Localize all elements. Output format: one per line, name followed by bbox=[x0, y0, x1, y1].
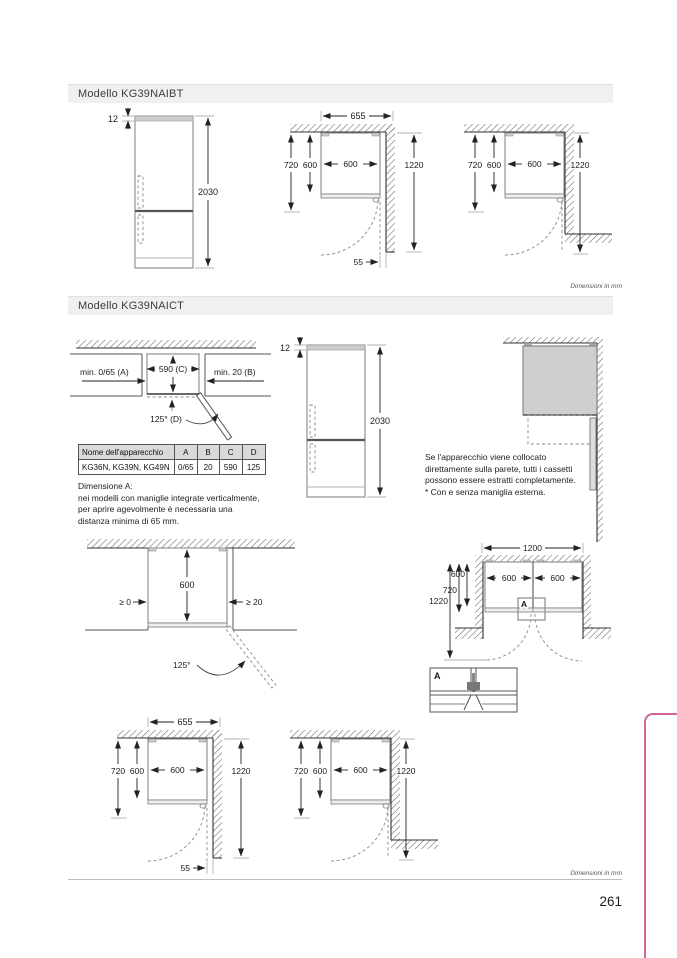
s2-front-view-diagram: 12 2030 bbox=[272, 335, 412, 507]
page-number: 261 bbox=[540, 894, 622, 909]
dim-label-min-20B: min. 20 (B) bbox=[214, 367, 256, 377]
dim-clearance: 1220 bbox=[397, 133, 424, 252]
dim-left-gap: ≥ 0 bbox=[119, 597, 146, 607]
dim-height: 2030 bbox=[195, 116, 218, 268]
cell-b: 20 bbox=[197, 460, 219, 475]
s2-corner-top-view-diagram: 655 720 600 600 1220 55 bbox=[103, 712, 268, 878]
fridge-outline bbox=[307, 345, 365, 497]
dim-label-720: 720 bbox=[284, 160, 298, 170]
units-note-2: Dimensioni in mm bbox=[442, 870, 622, 877]
s2-detail-a-diagram: A bbox=[428, 666, 520, 714]
col-b: B bbox=[197, 445, 219, 460]
detail-callout-label: A bbox=[521, 599, 527, 609]
dim-label-590C: 590 (C) bbox=[159, 364, 188, 374]
dim-label-ge20: ≥ 20 bbox=[246, 597, 263, 607]
dim-label-600-depth: 600 bbox=[313, 766, 327, 776]
dim-wall-depth: 720 bbox=[468, 135, 484, 212]
dim-label-600-depth: 600 bbox=[303, 160, 317, 170]
s1-recess-top-view-diagram: 720 600 600 1220 bbox=[452, 106, 617, 272]
dim-label-gap: 12 bbox=[108, 114, 118, 124]
dim-left-gap: min. 0/65 (A) bbox=[80, 367, 145, 381]
manual-page: { "page": { "number": "261", "accent_pin… bbox=[0, 0, 677, 958]
dim-label-600-right: 600 bbox=[550, 573, 564, 583]
table-row: KG36N, KG39N, KG49N 0/65 20 590 125 bbox=[79, 460, 266, 475]
door-swing bbox=[331, 804, 388, 861]
dim-label-600-depth: 600 bbox=[487, 160, 501, 170]
cell-c: 590 bbox=[219, 460, 242, 475]
door-swing bbox=[321, 198, 380, 256]
fridge-pair-top-view bbox=[485, 560, 582, 612]
s2-niche-diagram: 590 (C) min. 0/65 (A) min. 20 (B) 125° (… bbox=[68, 332, 273, 442]
note-line-4: distanza minima di 65 mm. bbox=[78, 516, 278, 528]
s2-side-by-side-diagram: 1200 600 720 1220 bbox=[420, 540, 620, 668]
dim-label-55: 55 bbox=[181, 863, 191, 873]
dim-wall-depth: 720 bbox=[294, 741, 310, 818]
dim-body-depth: 600 bbox=[303, 135, 317, 192]
dim-label-125: 125° bbox=[173, 660, 191, 670]
dim-label-600-left: 600 bbox=[502, 573, 516, 583]
dim-label-655: 655 bbox=[350, 111, 365, 121]
dim-right-gap: min. 20 (B) bbox=[207, 367, 264, 381]
s1-front-view-diagram: 12 2030 bbox=[100, 106, 240, 278]
table-header-row: Nome dell'apparecchio A B C D bbox=[79, 445, 266, 460]
dim-label-1220: 1220 bbox=[405, 160, 424, 170]
dim-label-height: 2030 bbox=[198, 187, 218, 197]
dim-label-720: 720 bbox=[111, 766, 125, 776]
wallnote-line-1: Se l'apparecchio viene collocato bbox=[425, 452, 605, 464]
dim-total-width: 655 bbox=[148, 717, 220, 727]
footer-rule bbox=[68, 879, 622, 880]
dim-body-depth: 600 bbox=[487, 135, 501, 192]
section1-header: Modello KG39NAIBT bbox=[68, 84, 613, 103]
dim-label-55: 55 bbox=[354, 257, 364, 267]
dim-wall-depth: 720 bbox=[284, 135, 300, 212]
dim-label-655: 655 bbox=[177, 717, 192, 727]
s2-recess-top-view-diagram: 720 600 600 1220 bbox=[278, 712, 443, 878]
dim-label-720: 720 bbox=[294, 766, 308, 776]
dim-clearance: 1220 bbox=[224, 739, 251, 858]
section1-title: Modello KG39NAIBT bbox=[78, 88, 184, 100]
cell-models: KG36N, KG39N, KG49N bbox=[79, 460, 175, 475]
dim-total-width: 655 bbox=[321, 111, 393, 121]
dim-label-min-065A: min. 0/65 (A) bbox=[80, 367, 129, 377]
door-swing bbox=[505, 198, 562, 255]
dim-label-720: 720 bbox=[468, 160, 482, 170]
dimension-a-note: Dimensione A: nei modelli con maniglie i… bbox=[78, 481, 278, 527]
cell-a: 0/65 bbox=[175, 460, 198, 475]
wallnote-line-3: possono essere estratti completamente. bbox=[425, 475, 605, 487]
door-swing bbox=[148, 804, 207, 862]
dim-side-gap: 55 bbox=[354, 252, 386, 268]
s1-corner-top-view-diagram: 655 720 600 600 1220 55 bbox=[276, 106, 441, 272]
wallnote-line-2: direttamente sulla parete, tutti i casse… bbox=[425, 464, 605, 476]
col-c: C bbox=[219, 445, 242, 460]
col-nome: Nome dell'apparecchio bbox=[79, 445, 175, 460]
dim-label-600-width: 600 bbox=[343, 159, 357, 169]
dim-wall-depth: 720 bbox=[111, 741, 127, 818]
dim-label-600-width: 600 bbox=[353, 765, 367, 775]
door-swings bbox=[485, 614, 582, 661]
cell-d: 125 bbox=[242, 460, 265, 475]
dim-right-gap: ≥ 20 bbox=[229, 597, 263, 607]
dim-label-600-width: 600 bbox=[527, 159, 541, 169]
dim-label-600-depth: 600 bbox=[130, 766, 144, 776]
fridge-top-view bbox=[147, 354, 202, 397]
dim-label-600: 600 bbox=[179, 580, 194, 590]
col-a: A bbox=[175, 445, 198, 460]
col-d: D bbox=[242, 445, 265, 460]
section2-title: Modello KG39NAICT bbox=[78, 300, 184, 312]
dim-label-1220: 1220 bbox=[429, 596, 448, 606]
dim-body-depth: 600 bbox=[313, 741, 327, 798]
fridge-top-view-filled bbox=[523, 344, 597, 415]
pink-highlight-mark bbox=[644, 713, 677, 958]
wall-placement-note: Se l'apparecchio viene collocato diretta… bbox=[425, 452, 605, 498]
dim-label-600-width: 600 bbox=[170, 765, 184, 775]
dim-top-gap: 12 bbox=[280, 337, 306, 358]
dim-label-1220: 1220 bbox=[232, 766, 251, 776]
open-door bbox=[197, 393, 232, 440]
dim-total-width: 1200 bbox=[482, 543, 583, 553]
dim-height: 2030 bbox=[367, 345, 390, 497]
detail-a-drawing bbox=[430, 668, 517, 712]
detail-a-label: A bbox=[434, 671, 441, 681]
wallnote-line-4: * Con e senza maniglia esterna. bbox=[425, 487, 605, 499]
dim-label-1220: 1220 bbox=[397, 766, 416, 776]
dim-door-angle: 125° bbox=[173, 660, 245, 675]
fridge-outline bbox=[135, 116, 193, 268]
s2-wall-placement-diagram bbox=[495, 332, 620, 546]
dim-side-gap: 55 bbox=[181, 858, 213, 874]
note-line-3: per aprire agevolmente è necessaria una bbox=[78, 504, 278, 516]
note-line-2: nei modelli con maniglie integrate verti… bbox=[78, 493, 278, 505]
dim-top-gap: 12 bbox=[108, 108, 134, 129]
dim-label-125D: 125° (D) bbox=[150, 414, 182, 424]
appliance-dimensions-table: Nome dell'apparecchio A B C D KG36N, KG3… bbox=[78, 444, 266, 475]
units-note-1: Dimensioni in mm bbox=[442, 283, 622, 290]
dim-label-height: 2030 bbox=[370, 416, 390, 426]
extended-drawer bbox=[528, 415, 592, 444]
open-door-dashed bbox=[226, 626, 276, 688]
s2-open-clearance-diagram: 600 ≥ 0 ≥ 20 125° bbox=[85, 535, 300, 697]
dim-label-1200: 1200 bbox=[523, 543, 542, 553]
note-line-1: Dimensione A: bbox=[78, 481, 278, 493]
section2-header: Modello KG39NAICT bbox=[68, 296, 613, 315]
dim-label-gap: 12 bbox=[280, 343, 290, 353]
dim-label-ge0: ≥ 0 bbox=[119, 597, 131, 607]
dim-body-depth: 600 bbox=[130, 741, 144, 798]
dim-label-1220: 1220 bbox=[571, 160, 590, 170]
dim-label-600: 600 bbox=[451, 569, 465, 579]
